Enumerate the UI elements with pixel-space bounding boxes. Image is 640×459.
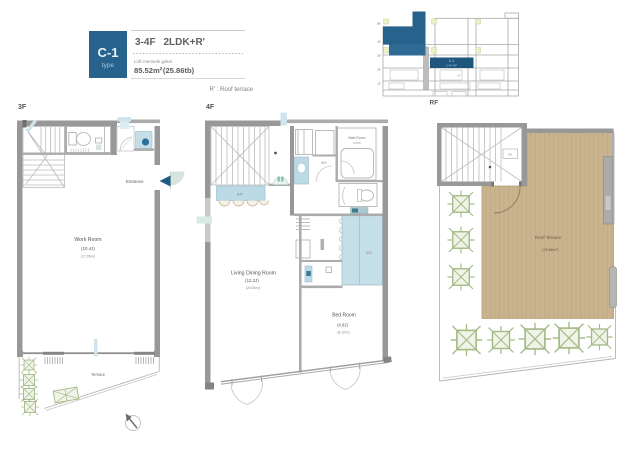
svg-text:R' : Roof terrace: R' : Roof terrace <box>210 87 254 93</box>
svg-text:(20.05m²): (20.05m²) <box>246 286 260 290</box>
svg-text:4F: 4F <box>377 40 381 44</box>
svg-text:(10.4J): (10.4J) <box>81 246 95 251</box>
svg-text:Bed Room: Bed Room <box>332 313 356 319</box>
svg-text:85.52m² (25.86tb): 85.52m² (25.86tb) <box>134 66 195 75</box>
svg-text:Bath Room: Bath Room <box>349 136 366 140</box>
svg-text:2F: 2F <box>377 68 381 72</box>
svg-text:1F: 1F <box>377 82 381 86</box>
svg-text:RF: RF <box>430 100 439 107</box>
svg-text:Work Room: Work Room <box>74 237 101 243</box>
svg-text:(4.9J): (4.9J) <box>337 323 348 328</box>
svg-text:2LDK+R': 2LDK+R' <box>164 37 206 48</box>
svg-text:3F: 3F <box>18 104 27 111</box>
svg-text:Loft menseki gokei: Loft menseki gokei <box>134 59 172 64</box>
svg-text:WIC: WIC <box>321 161 328 165</box>
svg-text:(8.10m²): (8.10m²) <box>337 331 349 335</box>
svg-text:C-1: C-1 <box>98 45 119 60</box>
svg-text:Living Dining Room: Living Dining Room <box>231 271 276 277</box>
svg-text:(25.86m²): (25.86m²) <box>542 248 559 252</box>
svg-text:4F: 4F <box>206 104 215 111</box>
svg-text:3F: 3F <box>377 54 381 58</box>
svg-text:KIT: KIT <box>237 193 242 197</box>
svg-text:2F: 2F <box>457 74 461 78</box>
svg-text:Terrace: Terrace <box>91 372 106 377</box>
svg-text:type: type <box>102 62 115 69</box>
svg-text:(12.2J): (12.2J) <box>245 278 259 283</box>
svg-text:Entrance: Entrance <box>126 179 144 184</box>
svg-text:Roof Terrace: Roof Terrace <box>535 235 562 240</box>
svg-text:3-4F+RF: 3-4F+RF <box>446 64 457 68</box>
svg-text:RF: RF <box>377 22 381 26</box>
svg-text:DN: DN <box>508 153 512 157</box>
svg-text:(17.05m²): (17.05m²) <box>81 255 95 259</box>
svg-text:C-1: C-1 <box>449 59 455 63</box>
svg-text:WIC: WIC <box>366 251 373 255</box>
svg-text:(1618): (1618) <box>353 141 362 145</box>
svg-text:3-4F: 3-4F <box>135 37 156 48</box>
